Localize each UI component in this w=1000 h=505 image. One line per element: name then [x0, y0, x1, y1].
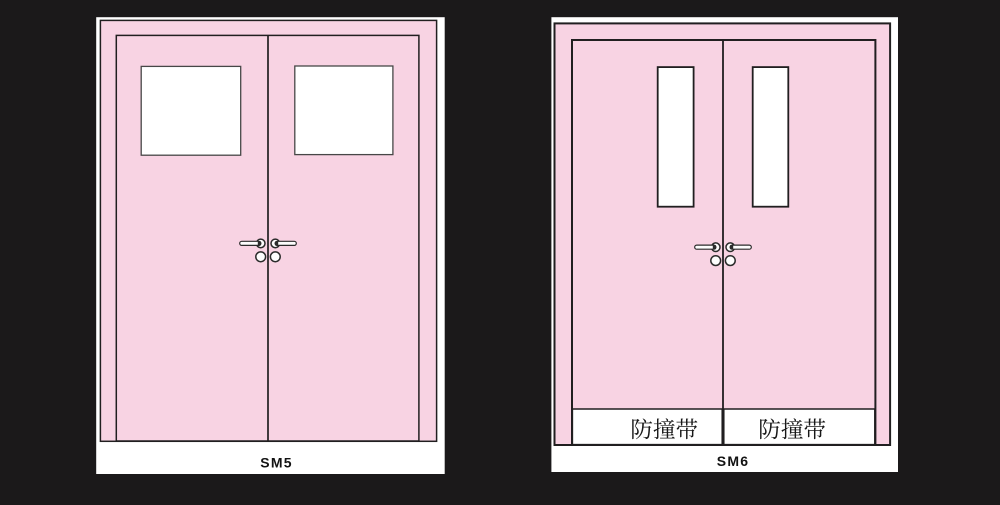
- svg-text:SM6: SM6: [717, 453, 749, 469]
- svg-text:SM5: SM5: [260, 455, 292, 471]
